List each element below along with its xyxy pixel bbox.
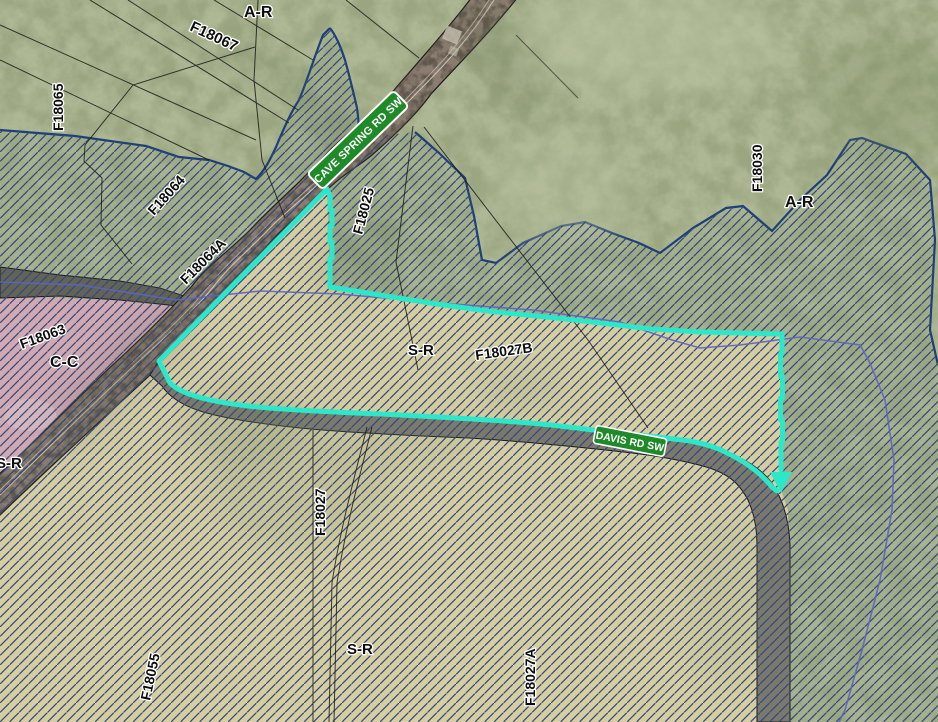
svg-text:F18027: F18027 bbox=[312, 488, 328, 536]
svg-text:S-R: S-R bbox=[408, 342, 434, 359]
svg-text:F18065: F18065 bbox=[50, 83, 66, 131]
svg-text:F18030: F18030 bbox=[749, 144, 765, 192]
svg-text:S-R: S-R bbox=[347, 641, 373, 658]
svg-text:S-R: S-R bbox=[0, 455, 22, 472]
svg-text:A-R: A-R bbox=[785, 194, 814, 211]
svg-text:F18027A: F18027A bbox=[522, 648, 538, 706]
svg-text:A-R: A-R bbox=[244, 4, 273, 21]
svg-text:C-C: C-C bbox=[50, 354, 79, 371]
